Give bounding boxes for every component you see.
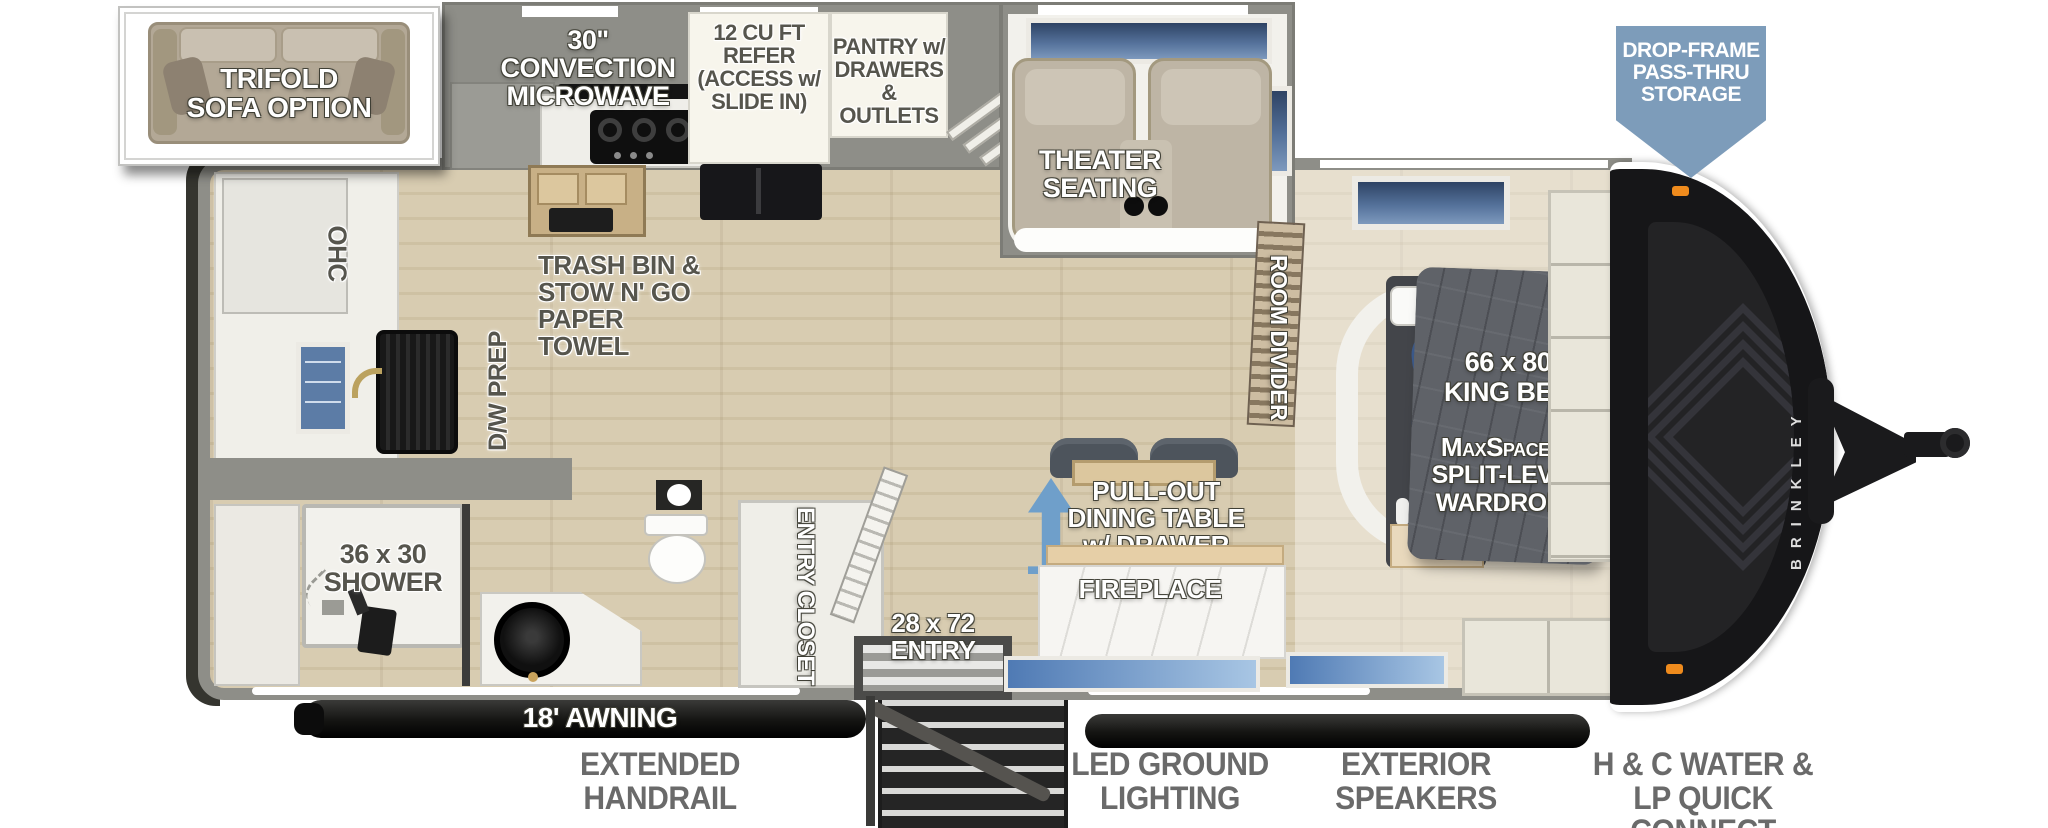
cooktop-knob: [646, 152, 653, 159]
dw-prep-label: D/W PREP: [485, 321, 511, 461]
hitch-coupler-knob: [1940, 428, 1970, 458]
theater-seating-label: THEATER SEATING: [990, 146, 1210, 202]
feature-exterior-speakers: EXTERIOR SPEAKERS: [1307, 748, 1525, 815]
entry-door-label: 28 x 72 ENTRY: [858, 610, 1008, 664]
awning-end-cap: [294, 703, 324, 735]
trash-stow-label: TRASH BIN & STOW N' GO PAPER TOWEL: [530, 252, 720, 360]
refrigerator-handle: [756, 168, 761, 214]
fireplace-mantel: [1046, 545, 1284, 565]
tongue-jack: [1808, 378, 1834, 524]
bath-corner-cabinet: [214, 504, 300, 686]
shoes-white: [1396, 498, 1409, 526]
front-cap-window: [1648, 222, 1794, 652]
brinkley-diamond-logo: [1648, 222, 1794, 652]
hitch-a-frame: [1820, 394, 1916, 508]
microwave-label: 30" CONVECTION MICROWAVE: [478, 26, 698, 110]
trifold-sofa-inset: TRIFOLD SOFA OPTION: [118, 6, 440, 166]
entry-closet-label: ENTRY CLOSET: [792, 506, 817, 686]
brinkley-brand-text: BRINKLEY: [1788, 310, 1805, 570]
rear-window: [296, 342, 350, 434]
cooktop-knob: [614, 152, 621, 159]
drop-frame-label: DROP-FRAME PASS-THRU STORAGE: [1620, 40, 1762, 105]
awning-label: 18' AWNING: [470, 703, 730, 732]
trash-bin-cabinet: [528, 165, 646, 237]
handrail-post: [866, 696, 875, 826]
bath-partition-wall: [198, 458, 572, 500]
theater-seat-front-edge: [1014, 228, 1276, 252]
toilet-bowl: [648, 534, 706, 584]
shower-fixture-icon: [357, 606, 397, 656]
shower-label: 36 x 30 SHOWER: [310, 540, 456, 596]
cooktop-knob: [630, 152, 637, 159]
feature-extended-handrail: EXTENDED HANDRAIL: [547, 748, 773, 815]
shower-glass-wall: [462, 504, 470, 686]
bottom-window-right: [1286, 652, 1448, 688]
room-divider-label: ROOM DIVIDER: [1266, 248, 1290, 428]
cooktop: [590, 110, 702, 164]
bedroom-bench: [1462, 618, 1632, 696]
slide-window-slot-1: [522, 6, 618, 17]
bottom-window-left: [1004, 656, 1260, 692]
burner-icon: [598, 118, 622, 142]
toilet-tank: [644, 514, 708, 536]
led-strip-left: [252, 687, 800, 695]
trifold-sofa-label: TRIFOLD SOFA OPTION: [154, 64, 404, 122]
kitchen-sink: [376, 330, 458, 454]
bedroom-window-slot: [1320, 160, 1608, 168]
slide-window-slot-3: [1038, 5, 1248, 15]
bedroom-window: [1352, 176, 1510, 230]
fireplace-label: FIREPLACE: [1070, 576, 1230, 603]
drop-frame-callout: DROP-FRAME PASS-THRU STORAGE: [1616, 26, 1766, 178]
vanity-faucet-icon: [528, 672, 538, 682]
floorplan-canvas: 30" CONVECTION MICROWAVE 12 CU FT REFER …: [0, 0, 2048, 828]
burner-icon: [632, 118, 656, 142]
frame-rail-right: [1085, 714, 1590, 748]
feature-water-lp-connect: H & C WATER & LP QUICK CONNECT: [1557, 748, 1848, 828]
pantry-label: PANTRY w/ DRAWERS & OUTLETS: [832, 36, 946, 128]
marker-light-bottom: [1666, 664, 1683, 674]
toilet-paper-holder: [656, 480, 702, 510]
feature-led-ground-lighting: LED GROUND LIGHTING: [1055, 748, 1284, 815]
burner-icon: [666, 118, 690, 142]
marker-light-top: [1672, 186, 1689, 196]
refrigerator-label: 12 CU FT REFER (ACCESS w/ SLIDE IN): [690, 22, 828, 114]
ohc-label: OHC: [323, 199, 350, 309]
vanity-sink: [494, 602, 570, 678]
refrigerator-body: [700, 164, 822, 220]
